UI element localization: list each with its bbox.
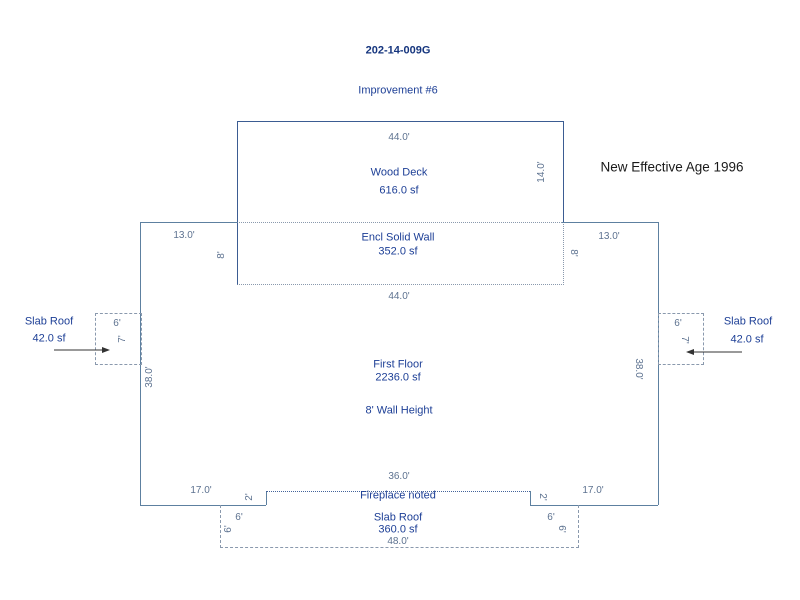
bottom-right-dimension: 17.0'	[582, 486, 603, 496]
bottom-slab-roof-label: Slab Roof	[374, 513, 422, 524]
encl-wall-left-dimension: 13.0'	[173, 231, 194, 241]
building-top-right-wall	[562, 222, 658, 223]
deck-label: Wood Deck	[371, 168, 428, 179]
left-slab-roof-arrow	[52, 344, 114, 356]
bottom-slab-left-top-dimension: 6'	[235, 513, 242, 523]
fireplace-left-step-wall	[266, 491, 267, 505]
right-slab-roof-label: Slab Roof	[724, 317, 772, 328]
fireplace-span-dimension: 36.0'	[388, 472, 409, 482]
left-slab-roof-width-dimension: 6'	[113, 319, 120, 329]
encl-wall-right-dimension: 13.0'	[598, 232, 619, 242]
bottom-slab-roof-width-dimension: 48.0'	[387, 537, 408, 547]
wall-height-note: 8' Wall Height	[365, 406, 432, 417]
deck-right-dimension: 14.0'	[537, 161, 547, 182]
fireplace-left-step-dimension: 2'	[245, 493, 255, 500]
bottom-slab-right-side-dimension: 6'	[556, 525, 566, 532]
bottom-slab-right-top-dimension: 6'	[547, 513, 554, 523]
right-slab-roof-depth-dimension: 7'	[679, 336, 689, 343]
bottom-left-dimension: 17.0'	[190, 486, 211, 496]
encl-wall-right-height-dimension: 8'	[568, 249, 578, 256]
right-slab-roof-area: 42.0 sf	[730, 335, 763, 346]
fireplace-right-step-dimension: 2'	[537, 493, 547, 500]
right-slab-roof-arrow	[682, 346, 744, 358]
left-slab-roof-label: Slab Roof	[25, 317, 73, 328]
parcel-id-title: 202-14-009G	[366, 46, 431, 57]
left-slab-roof-depth-dimension: 7'	[118, 335, 128, 342]
fireplace-right-step-wall	[530, 491, 531, 505]
deck-area: 616.0 sf	[379, 186, 418, 197]
first-floor-label: First Floor	[373, 360, 423, 371]
property-sketch-canvas: 202-14-009G Improvement #6 New Effective…	[0, 0, 800, 600]
encl-wall-label: Encl Solid Wall	[362, 233, 435, 244]
first-floor-area: 2236.0 sf	[375, 373, 420, 384]
right-slab-roof-width-dimension: 6'	[674, 319, 681, 329]
encl-wall-left-height-dimension: 8'	[217, 251, 227, 258]
bottom-slab-left-side-dimension: 6'	[224, 525, 234, 532]
effective-age-note: New Effective Age 1996	[600, 160, 743, 174]
building-top-left-wall	[140, 222, 237, 223]
improvement-label: Improvement #6	[358, 86, 437, 97]
first-floor-left-dimension: 38.0'	[145, 366, 155, 387]
left-slab-roof-area: 42.0 sf	[32, 334, 65, 345]
deck-top-dimension: 44.0'	[388, 133, 409, 143]
encl-wall-area: 352.0 sf	[378, 247, 417, 258]
encl-wall-bottom-dimension: 44.0'	[388, 292, 409, 302]
bottom-slab-roof-area: 360.0 sf	[378, 525, 417, 536]
fireplace-note: Fireplace noted	[360, 491, 436, 502]
first-floor-right-dimension: 38.0'	[633, 358, 643, 379]
